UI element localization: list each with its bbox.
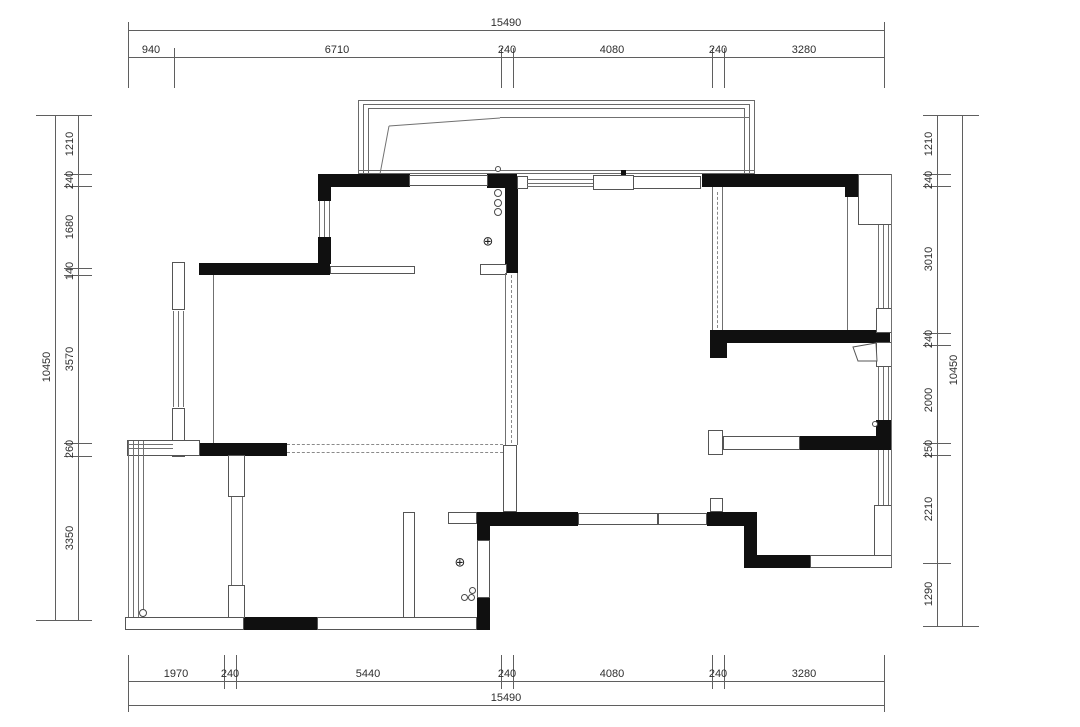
wall-right-corner (858, 174, 892, 225)
dim-label: 140 (64, 262, 76, 280)
wall-bedroom2-stub (710, 343, 727, 358)
window-line (527, 183, 593, 184)
dim-label: 2000 (923, 388, 935, 412)
dim-line-bottom-total (128, 705, 884, 706)
window-line (128, 441, 129, 617)
wall-top-right (702, 174, 858, 187)
door-bathroom (477, 540, 490, 598)
counter-band (330, 266, 415, 274)
wall-bedroom3-left-b (228, 585, 245, 618)
dim-label: 15490 (491, 17, 522, 29)
pipe-symbol (872, 421, 878, 427)
wall-bottom-white-b (317, 617, 477, 630)
dim-label: 260 (64, 440, 76, 458)
wall-left-pier-a (172, 262, 185, 310)
window-line (183, 311, 184, 407)
window-line (878, 225, 879, 308)
window-line (128, 444, 173, 445)
wall-right-pier-b (876, 342, 892, 367)
pipe-symbol (494, 208, 502, 216)
dim-ext (923, 563, 951, 564)
wall-right-pier-a (876, 308, 892, 333)
dim-label: 3280 (792, 44, 816, 56)
wall-top-plain (633, 176, 701, 189)
interior-line (847, 197, 848, 330)
interior-line (213, 275, 214, 443)
wall-study-white (723, 436, 800, 450)
dim-line-left-total (55, 115, 56, 620)
dim-ext (174, 48, 175, 88)
dim-label: 240 (923, 330, 935, 348)
dim-label: 240 (498, 44, 516, 56)
wall-kitchen-left-b (318, 237, 331, 264)
wall-bottom-black (244, 617, 317, 630)
wall-top-right-stub (845, 187, 858, 197)
dim-line-left-seg (78, 115, 79, 620)
wall-bedroom2-bottom (710, 330, 890, 343)
dim-line-bottom-seg (128, 681, 884, 682)
dim-ext (884, 22, 885, 88)
balcony-sill-line (358, 170, 755, 171)
dim-label: 1970 (164, 668, 188, 680)
wall-bedroom1-top (199, 263, 330, 275)
dim-label: 240 (709, 44, 727, 56)
beam-dashed-line (287, 452, 503, 453)
window-line (231, 497, 232, 585)
door-swing (853, 343, 877, 361)
window-line (888, 367, 889, 420)
wall-kitchen-left-a (318, 187, 331, 201)
window-line (888, 450, 889, 505)
dim-label: 1290 (923, 582, 935, 606)
dim-label: 10450 (41, 352, 53, 383)
window-line (527, 179, 593, 180)
dim-label: 2210 (923, 497, 935, 521)
window-line (324, 201, 325, 237)
dim-label: 240 (221, 668, 239, 680)
floor-plan-canvas: ⊕ ⊕ 15490 940 6710 240 4080 240 3280 197… (0, 0, 1080, 727)
dim-line-top-total (128, 30, 884, 31)
partition-dashed-line (511, 275, 512, 443)
window-passage-a (578, 513, 658, 525)
dim-label: 3010 (923, 247, 935, 271)
window-line (329, 201, 330, 237)
pipe-symbol (469, 587, 476, 594)
partition-dashed-line (717, 192, 718, 328)
dim-label: 10450 (948, 355, 960, 386)
window-line (527, 186, 593, 187)
window-line (883, 450, 884, 505)
wall-right-block (876, 420, 892, 450)
dim-ext (36, 620, 92, 621)
window-line (888, 225, 889, 308)
wall-top-column (487, 174, 517, 188)
wall-bedroom3-right (403, 512, 415, 618)
window-line (128, 448, 173, 449)
wall-bottom-white-a (125, 617, 244, 630)
balcony-glazing-line (500, 117, 750, 118)
wall-bedroom3-left-a (228, 455, 245, 497)
wall-tcap (708, 430, 723, 455)
dim-label: 240 (64, 171, 76, 189)
wall-bath-col-a (477, 524, 490, 540)
wall-entry-bottom (744, 555, 810, 568)
window-passage-b (658, 513, 707, 525)
dim-label: 1210 (64, 132, 76, 156)
dim-label: 4080 (600, 668, 624, 680)
window-line (242, 497, 243, 585)
wall-bath-stub (448, 512, 477, 524)
dim-label: 240 (709, 668, 727, 680)
partition-line (505, 273, 506, 445)
partition-line (517, 273, 518, 445)
pipe-symbol (139, 609, 147, 617)
wall-bath-col-b (477, 598, 490, 630)
dim-ext (923, 626, 979, 627)
wall-stub-white (480, 264, 507, 275)
pipe-symbol (494, 189, 502, 197)
partition-line (712, 187, 713, 330)
floor-drain-symbol: ⊕ (455, 557, 466, 570)
wall-passage-a (477, 512, 578, 526)
dim-label: 240 (498, 668, 516, 680)
window-line (883, 367, 884, 420)
window-line (878, 450, 879, 505)
window-line (173, 311, 174, 407)
wall-small-stub (710, 498, 723, 512)
partition-line (722, 187, 723, 330)
window-line (133, 441, 134, 617)
window-line (178, 311, 179, 407)
dim-ext (128, 22, 129, 88)
dim-label: 940 (142, 44, 160, 56)
wall-entry-white (810, 555, 892, 568)
dim-label: 3280 (792, 668, 816, 680)
window-line (143, 441, 144, 617)
window-line (319, 201, 320, 237)
dim-label: 15490 (491, 692, 522, 704)
pipe-symbol (468, 594, 475, 601)
dim-line-top-seg (128, 57, 884, 58)
wall-entry-step (744, 524, 757, 557)
pipe-symbol (494, 199, 502, 207)
beam-dashed-line (287, 444, 503, 445)
window-line (878, 367, 879, 420)
dim-label: 250 (923, 440, 935, 458)
wall-center-lower (503, 445, 517, 512)
pipe-symbol (461, 594, 468, 601)
floor-drain-symbol: ⊕ (483, 236, 494, 249)
dim-line-right-total (962, 115, 963, 626)
opening-top-left (409, 175, 488, 186)
dim-label: 1680 (64, 215, 76, 239)
dim-ext (128, 655, 129, 712)
dim-ext (36, 115, 92, 116)
window-line (138, 441, 139, 617)
wall-kitchen-right (505, 188, 518, 273)
dim-label: 3570 (64, 347, 76, 371)
door-top-middle (593, 175, 634, 190)
wall-top-left (318, 174, 410, 187)
dim-label: 4080 (600, 44, 624, 56)
pipe-symbol (495, 166, 501, 172)
dim-label: 240 (923, 171, 935, 189)
dim-ext (884, 655, 885, 712)
dim-label: 5440 (356, 668, 380, 680)
wall-study-bottom (800, 436, 878, 450)
wall-right-outer-line (891, 174, 892, 567)
window-line (883, 225, 884, 308)
dim-label: 1210 (923, 132, 935, 156)
dim-label: 6710 (325, 44, 349, 56)
dim-line-right-seg (937, 115, 938, 626)
dim-label: 3350 (64, 526, 76, 550)
dim-ext (923, 115, 979, 116)
